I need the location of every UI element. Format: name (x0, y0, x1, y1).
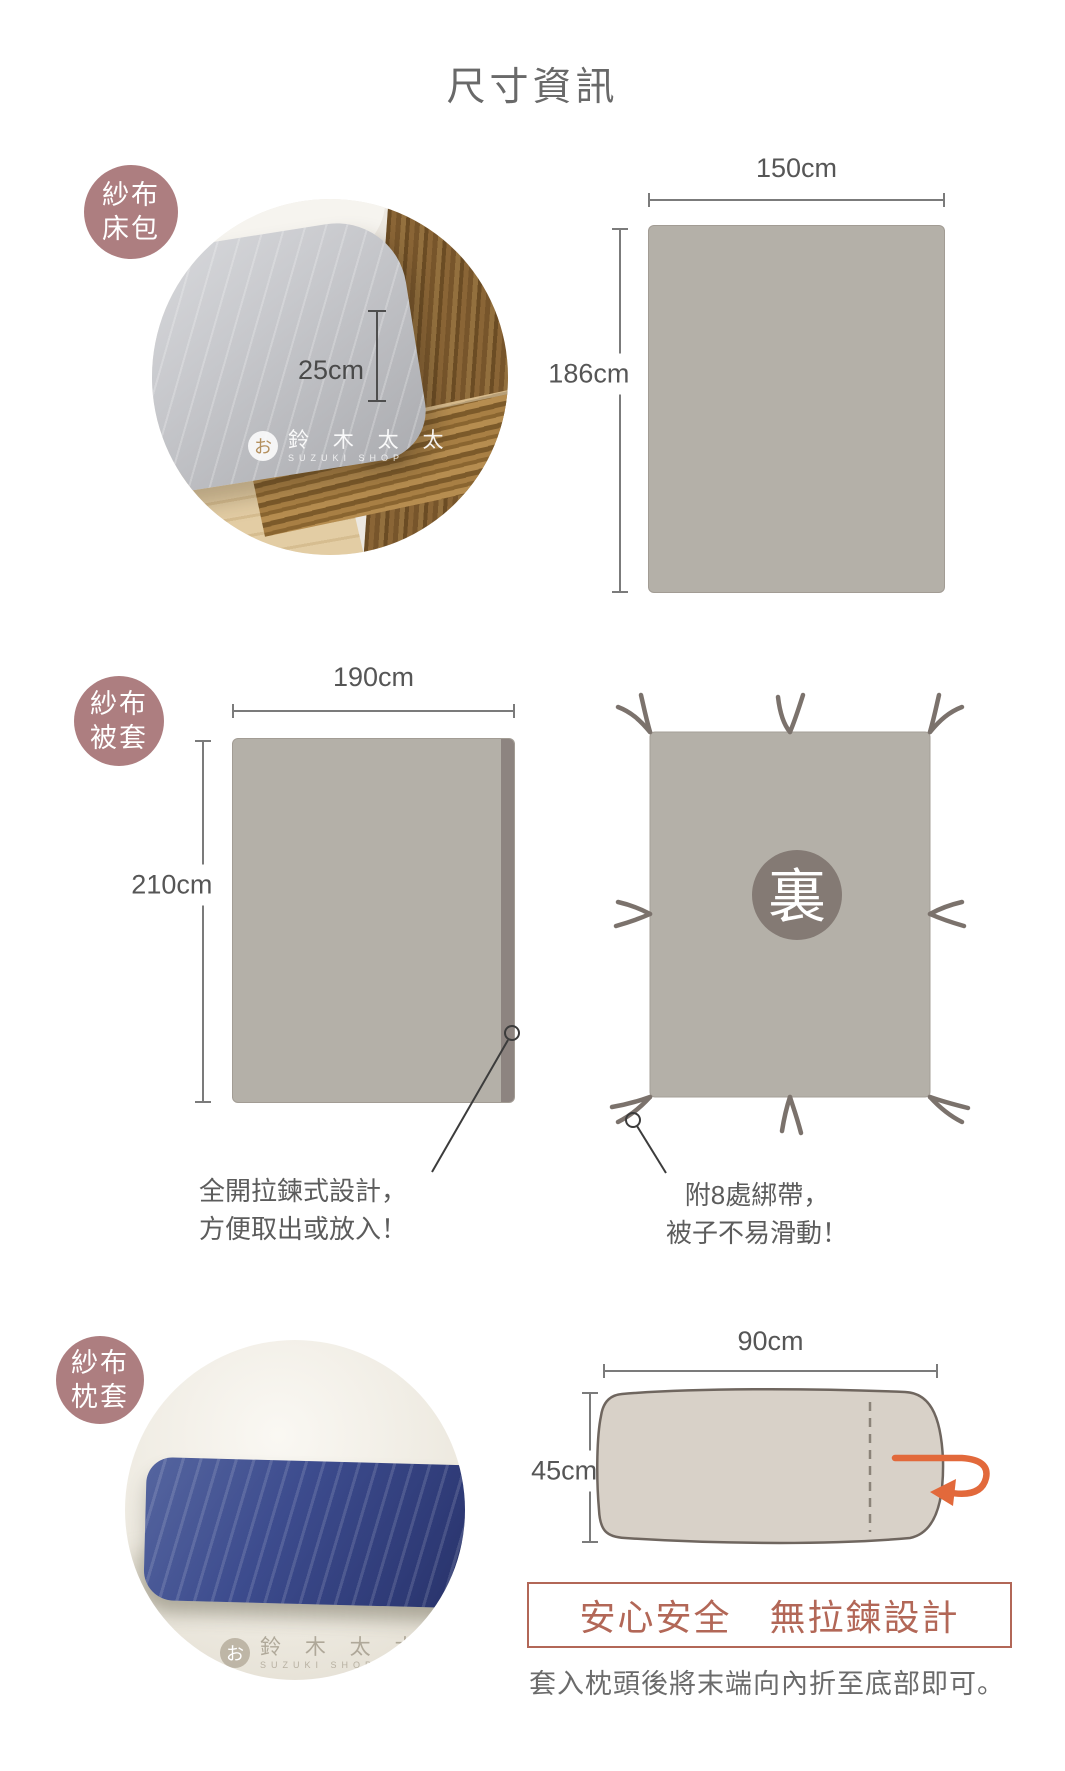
tie-left-middle (618, 902, 650, 914)
badge-gauze-fitted-sheet: 紗布 床包 (84, 165, 178, 259)
watermark-logo-icon: お (220, 1638, 250, 1668)
pillowcase-photo: お 鈴 木 太 太 SUZUKI SHOP (125, 1340, 465, 1680)
badge-label-line2: 床包 (102, 212, 160, 246)
sheet-width-dimension-line (648, 199, 945, 201)
photo-navy-pillow (144, 1457, 465, 1610)
watermark-subtitle: SUZUKI SHOP (288, 453, 453, 463)
badge-label-line1: 紗布 (71, 1346, 129, 1380)
watermark-logo-icon: お (248, 431, 278, 461)
depth-dimension-label: 25cm (248, 355, 364, 386)
leader-line (432, 1040, 508, 1172)
zipper-leader-line (424, 1024, 524, 1179)
pillowcase-caption: 套入枕頭後將末端向內折至底部即可。 (467, 1662, 1065, 1701)
depth-dimension-line (376, 310, 378, 402)
zipper-note: 全開拉鍊式設計， 方便取出或放入！ (162, 1172, 444, 1248)
duvet-height-label: 210cm (127, 865, 216, 906)
badge-label-line1: 紗布 (90, 687, 148, 721)
watermark: お 鈴 木 太 太 SUZUKI SHOP (248, 429, 453, 463)
back-side-label: 裏 (768, 865, 826, 930)
duvet-height-dimension-line: 210cm (202, 740, 204, 1103)
sheet-width-label: 150cm (648, 153, 945, 184)
fitted-sheet-photo: 25cm お 鈴 木 太 太 SUZUKI SHOP (152, 199, 508, 555)
pillow-width-dimension-line (603, 1370, 938, 1372)
pillowcase-diagram (580, 1380, 1025, 1570)
badge-label-line2: 被套 (90, 721, 148, 755)
duvet-width-label: 190cm (232, 662, 515, 693)
pillow-width-label: 90cm (603, 1326, 938, 1357)
watermark: お 鈴 木 太 太 SUZUKI SHOP (220, 1636, 425, 1670)
badge-gauze-duvet-cover: 紗布 被套 (74, 676, 164, 766)
sheet-height-label: 186cm (544, 354, 633, 395)
tie-bottom-middle-2 (790, 1097, 801, 1133)
ties-marker-circle (626, 1113, 640, 1127)
ties-leader-line (620, 1110, 676, 1180)
sheet-diagram (648, 225, 945, 593)
duvet-back-diagram: 裏 (600, 678, 1010, 1156)
ties-note: 附8處綁帶， 被子不易滑動！ (612, 1176, 902, 1252)
tie-left-middle-2 (616, 914, 650, 926)
sheet-height-dimension-line: 186cm (619, 228, 621, 593)
ties-note-line1: 附8處綁帶， (612, 1176, 902, 1214)
tie-bottom-middle (782, 1097, 790, 1131)
no-zipper-feature-box: 安心安全 無拉鍊設計 (527, 1582, 1012, 1648)
ties-note-line2: 被子不易滑動！ (612, 1214, 902, 1252)
zipper-marker-circle (505, 1026, 519, 1040)
pillow-outline (597, 1389, 943, 1543)
tie-top-middle-2 (790, 695, 803, 732)
badge-label-line1: 紗布 (102, 178, 160, 212)
tie-right-middle (930, 902, 962, 914)
badge-gauze-pillowcase: 紗布 枕套 (56, 1336, 144, 1424)
zipper-note-line2: 方便取出或放入！ (162, 1210, 444, 1248)
tie-top-middle (778, 697, 790, 732)
zipper-note-line1: 全開拉鍊式設計， (162, 1172, 444, 1210)
tie-right-middle-2 (930, 914, 964, 926)
watermark-subtitle: SUZUKI SHOP (260, 1660, 425, 1670)
duvet-width-dimension-line (232, 710, 515, 712)
watermark-name: 鈴 木 太 太 (260, 1636, 425, 1660)
no-zipper-feature-label: 安心安全 無拉鍊設計 (579, 1589, 959, 1641)
size-info-page: 尺寸資訊 紗布 床包 25cm お 鈴 木 太 太 SUZUKI SHOP 15… (0, 0, 1065, 1771)
page-title: 尺寸資訊 (0, 56, 1065, 112)
leader-line (637, 1126, 666, 1173)
badge-label-line2: 枕套 (71, 1380, 129, 1414)
watermark-name: 鈴 木 太 太 (288, 429, 453, 453)
